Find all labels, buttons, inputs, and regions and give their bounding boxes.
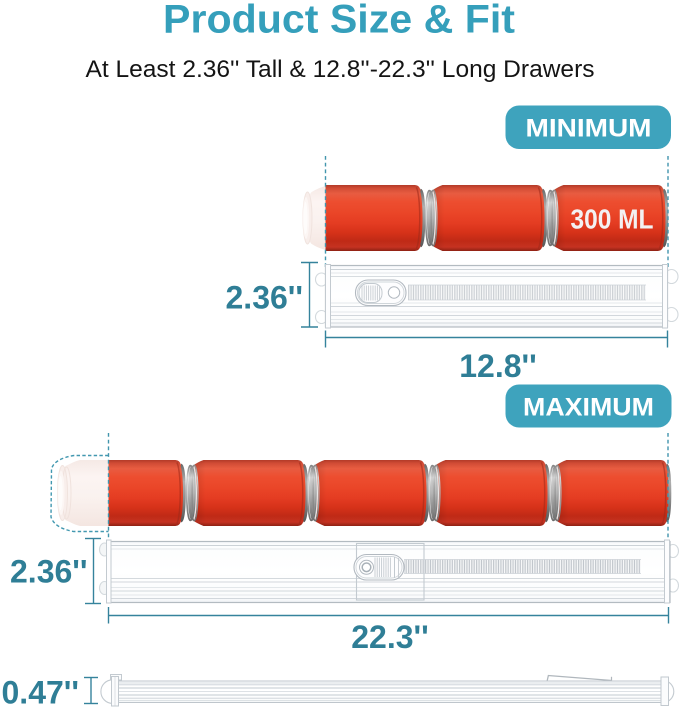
- svg-text:MINIMUM: MINIMUM: [526, 115, 652, 143]
- svg-text:2.36'': 2.36'': [10, 554, 88, 590]
- svg-text:2.36'': 2.36'': [226, 280, 304, 316]
- svg-text:0.47'': 0.47'': [2, 675, 80, 711]
- svg-text:Product Size & Fit: Product Size & Fit: [163, 0, 515, 42]
- svg-text:12.8'': 12.8'': [459, 348, 537, 384]
- svg-text:MAXIMUM: MAXIMUM: [523, 394, 654, 422]
- svg-text:300 ML: 300 ML: [571, 204, 654, 235]
- svg-text:At Least 2.36'' Tall & 12.8''-: At Least 2.36'' Tall & 12.8''-22.3'' Lon…: [86, 56, 595, 83]
- svg-text:22.3'': 22.3'': [351, 619, 429, 655]
